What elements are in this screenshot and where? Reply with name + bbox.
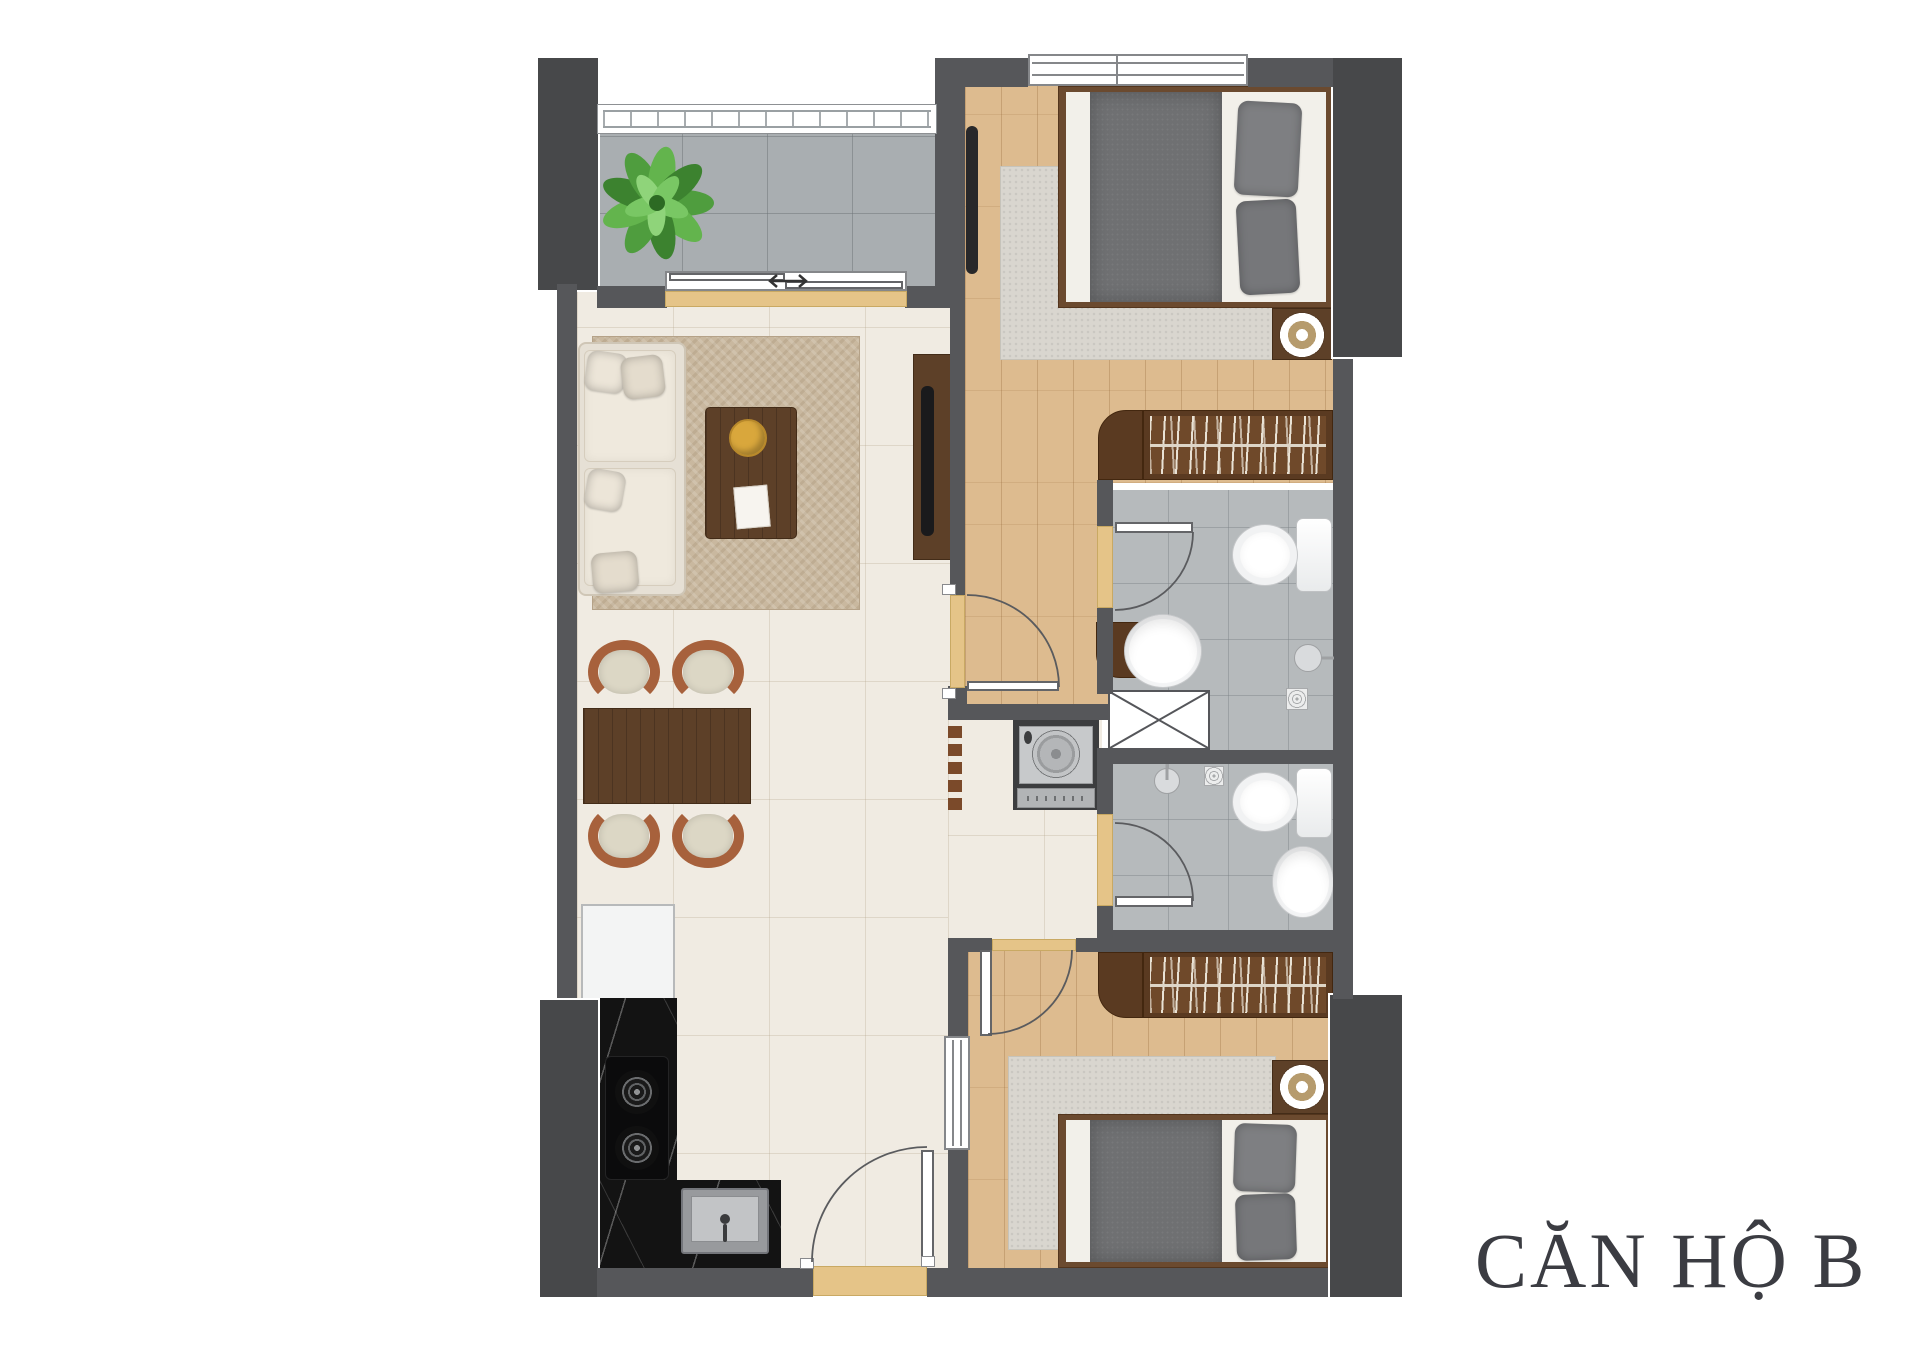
window-mullion bbox=[1032, 62, 1244, 64]
dining-chair bbox=[588, 804, 660, 868]
wall-between-bathrooms bbox=[1097, 750, 1333, 764]
burner-icon bbox=[615, 1070, 659, 1114]
floor-drain-icon bbox=[1286, 688, 1308, 710]
wall-bedroom1-top-b bbox=[1248, 58, 1333, 87]
bedroom2-blanket bbox=[1090, 1120, 1222, 1262]
wall-right bbox=[1333, 355, 1353, 999]
entrance-threshold bbox=[813, 1266, 927, 1296]
decor-partition-block bbox=[948, 726, 962, 738]
bedroom1-wall-tv-icon bbox=[966, 126, 978, 274]
wall-under-balcony-left bbox=[597, 286, 667, 308]
shower-head-icon bbox=[1154, 768, 1180, 794]
faucet-icon bbox=[720, 1214, 730, 1224]
washer-control-panel bbox=[1017, 788, 1095, 808]
door-jamb bbox=[942, 584, 956, 595]
door-jamb bbox=[800, 1258, 814, 1269]
door-jamb bbox=[921, 1256, 935, 1267]
book-icon bbox=[733, 485, 771, 530]
chair-cushion bbox=[599, 814, 649, 858]
toilet1-bowl bbox=[1232, 524, 1298, 586]
bathroom2-sink bbox=[1272, 846, 1334, 918]
toilet2-bowl bbox=[1232, 772, 1298, 832]
wall-bottom-right bbox=[927, 1268, 1333, 1297]
sofa-pillow bbox=[583, 467, 627, 513]
bedroom1-pillow bbox=[1236, 198, 1301, 295]
washer-drum-icon bbox=[1030, 728, 1082, 780]
decor-partition-block bbox=[948, 762, 962, 774]
bedroom2-wardrobe-hangers bbox=[1150, 957, 1326, 1013]
tray-icon bbox=[729, 419, 767, 457]
sofa-pillow bbox=[620, 354, 667, 401]
dining-chair bbox=[588, 640, 660, 704]
balcony-railing-balusters bbox=[603, 110, 931, 128]
window-mullion bbox=[1032, 74, 1244, 76]
window-mullion bbox=[1116, 56, 1118, 84]
sliding-door-panel bbox=[669, 273, 785, 281]
dining-table bbox=[583, 708, 751, 804]
window-mullion bbox=[952, 1040, 954, 1146]
wall-bedroom2-top-b bbox=[1076, 938, 1333, 952]
window-mullion bbox=[960, 1040, 962, 1146]
wall-pillar-top-left bbox=[538, 58, 598, 290]
floor-plan-page: CĂN HỘ B bbox=[0, 0, 1920, 1357]
dining-chair bbox=[672, 640, 744, 704]
burner-icon bbox=[615, 1126, 659, 1170]
bathroom1-door-leaf bbox=[1115, 522, 1193, 533]
bedroom2-wardrobe-cap bbox=[1098, 952, 1143, 1018]
bedroom1-wardrobe-hangers bbox=[1150, 416, 1326, 474]
floor-drain-icon bbox=[1204, 766, 1224, 786]
balcony-floor bbox=[597, 133, 937, 291]
wall-bedroom1-top-a bbox=[965, 58, 1028, 87]
chair-cushion bbox=[599, 650, 649, 694]
entrance-door-leaf bbox=[921, 1150, 934, 1264]
wall-pillar-top-right bbox=[1333, 58, 1402, 357]
bathroom1-sink bbox=[1124, 614, 1202, 688]
decor-partition-block bbox=[948, 744, 962, 756]
decor-partition-block bbox=[948, 798, 962, 810]
wall-bathroom1-left-a bbox=[1097, 480, 1113, 528]
bedroom1-door-threshold bbox=[950, 595, 965, 688]
bedroom2-door-leaf bbox=[980, 950, 992, 1036]
dining-chair bbox=[672, 804, 744, 868]
wall-pillar-bottom-left bbox=[540, 1000, 598, 1297]
toilet2-tank bbox=[1296, 768, 1332, 838]
bathroom2-door-threshold bbox=[1097, 814, 1113, 906]
wall-under-balcony-right bbox=[905, 286, 965, 308]
wall-living-bedroom1 bbox=[950, 290, 965, 597]
bedroom2-pillow bbox=[1235, 1193, 1297, 1261]
bathroom2-door-leaf bbox=[1115, 896, 1193, 907]
bedroom1-blanket bbox=[1090, 92, 1222, 302]
wall-bedroom1-bottom bbox=[948, 704, 1110, 720]
shower-head-icon bbox=[1294, 644, 1322, 672]
tv-icon bbox=[921, 386, 934, 536]
bedroom2-pillow bbox=[1233, 1123, 1297, 1193]
wall-bottom-left bbox=[597, 1268, 813, 1297]
washer-detergent-icon bbox=[1024, 731, 1032, 744]
chair-cushion bbox=[683, 814, 733, 858]
sliding-door-panel bbox=[785, 281, 903, 289]
bedroom1-lamp-icon bbox=[1279, 312, 1325, 358]
balcony-threshold bbox=[665, 291, 907, 307]
toilet1-tank bbox=[1296, 518, 1332, 592]
bedroom1-window bbox=[1028, 54, 1248, 86]
bedroom2-lamp-icon bbox=[1279, 1064, 1325, 1110]
bedroom2-door-threshold bbox=[992, 939, 1076, 951]
wall-bathroom1-left-b bbox=[1097, 606, 1113, 694]
bedroom1-pillow bbox=[1234, 100, 1303, 197]
chair-cushion bbox=[683, 650, 733, 694]
wall-balcony-right bbox=[935, 58, 965, 296]
wall-left bbox=[557, 284, 577, 1004]
faucet-stem bbox=[723, 1224, 727, 1242]
bedroom2-window bbox=[944, 1036, 970, 1150]
refrigerator bbox=[581, 904, 675, 1000]
bedroom1-door-leaf bbox=[967, 681, 1059, 691]
bedroom1-wardrobe-cap bbox=[1098, 410, 1143, 480]
bedroom1-floor-strip bbox=[965, 483, 1108, 709]
bathroom1-door-threshold bbox=[1097, 526, 1113, 608]
decor-partition-block bbox=[948, 780, 962, 792]
wall-pillar-bottom-right bbox=[1330, 995, 1402, 1297]
plan-title: CĂN HỘ B bbox=[1475, 1216, 1867, 1306]
sofa-pillow bbox=[590, 550, 639, 594]
door-jamb bbox=[942, 688, 956, 699]
technical-shaft bbox=[1108, 690, 1210, 750]
